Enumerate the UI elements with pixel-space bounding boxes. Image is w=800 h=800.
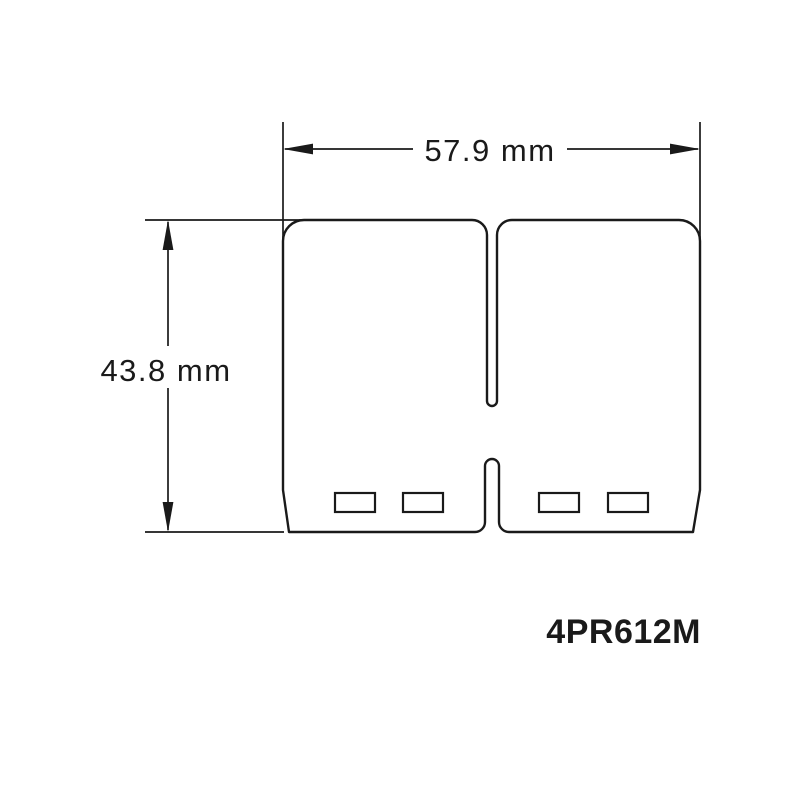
- arrowhead-left-icon: [283, 144, 313, 155]
- arrowhead-up-icon: [163, 220, 174, 250]
- mounting-slot: [608, 493, 648, 512]
- part-number-label: 4PR612M: [546, 613, 701, 651]
- drawing-canvas: 57.9 mm 43.8 mm 4PR612M: [0, 0, 800, 800]
- height-dimension: 43.8 mm: [100, 220, 305, 532]
- width-dimension: 57.9 mm: [283, 122, 700, 242]
- height-dimension-label: 43.8 mm: [100, 353, 231, 388]
- mounting-slot: [335, 493, 375, 512]
- width-dimension-label: 57.9 mm: [424, 133, 555, 168]
- mounting-slots: [335, 493, 648, 512]
- reed-petal-technical-drawing: 57.9 mm 43.8 mm 4PR612M: [0, 0, 800, 800]
- mounting-slot: [403, 493, 443, 512]
- arrowhead-down-icon: [163, 502, 174, 532]
- mounting-slot: [539, 493, 579, 512]
- arrowhead-right-icon: [670, 144, 700, 155]
- reed-petal-outline: [283, 220, 700, 532]
